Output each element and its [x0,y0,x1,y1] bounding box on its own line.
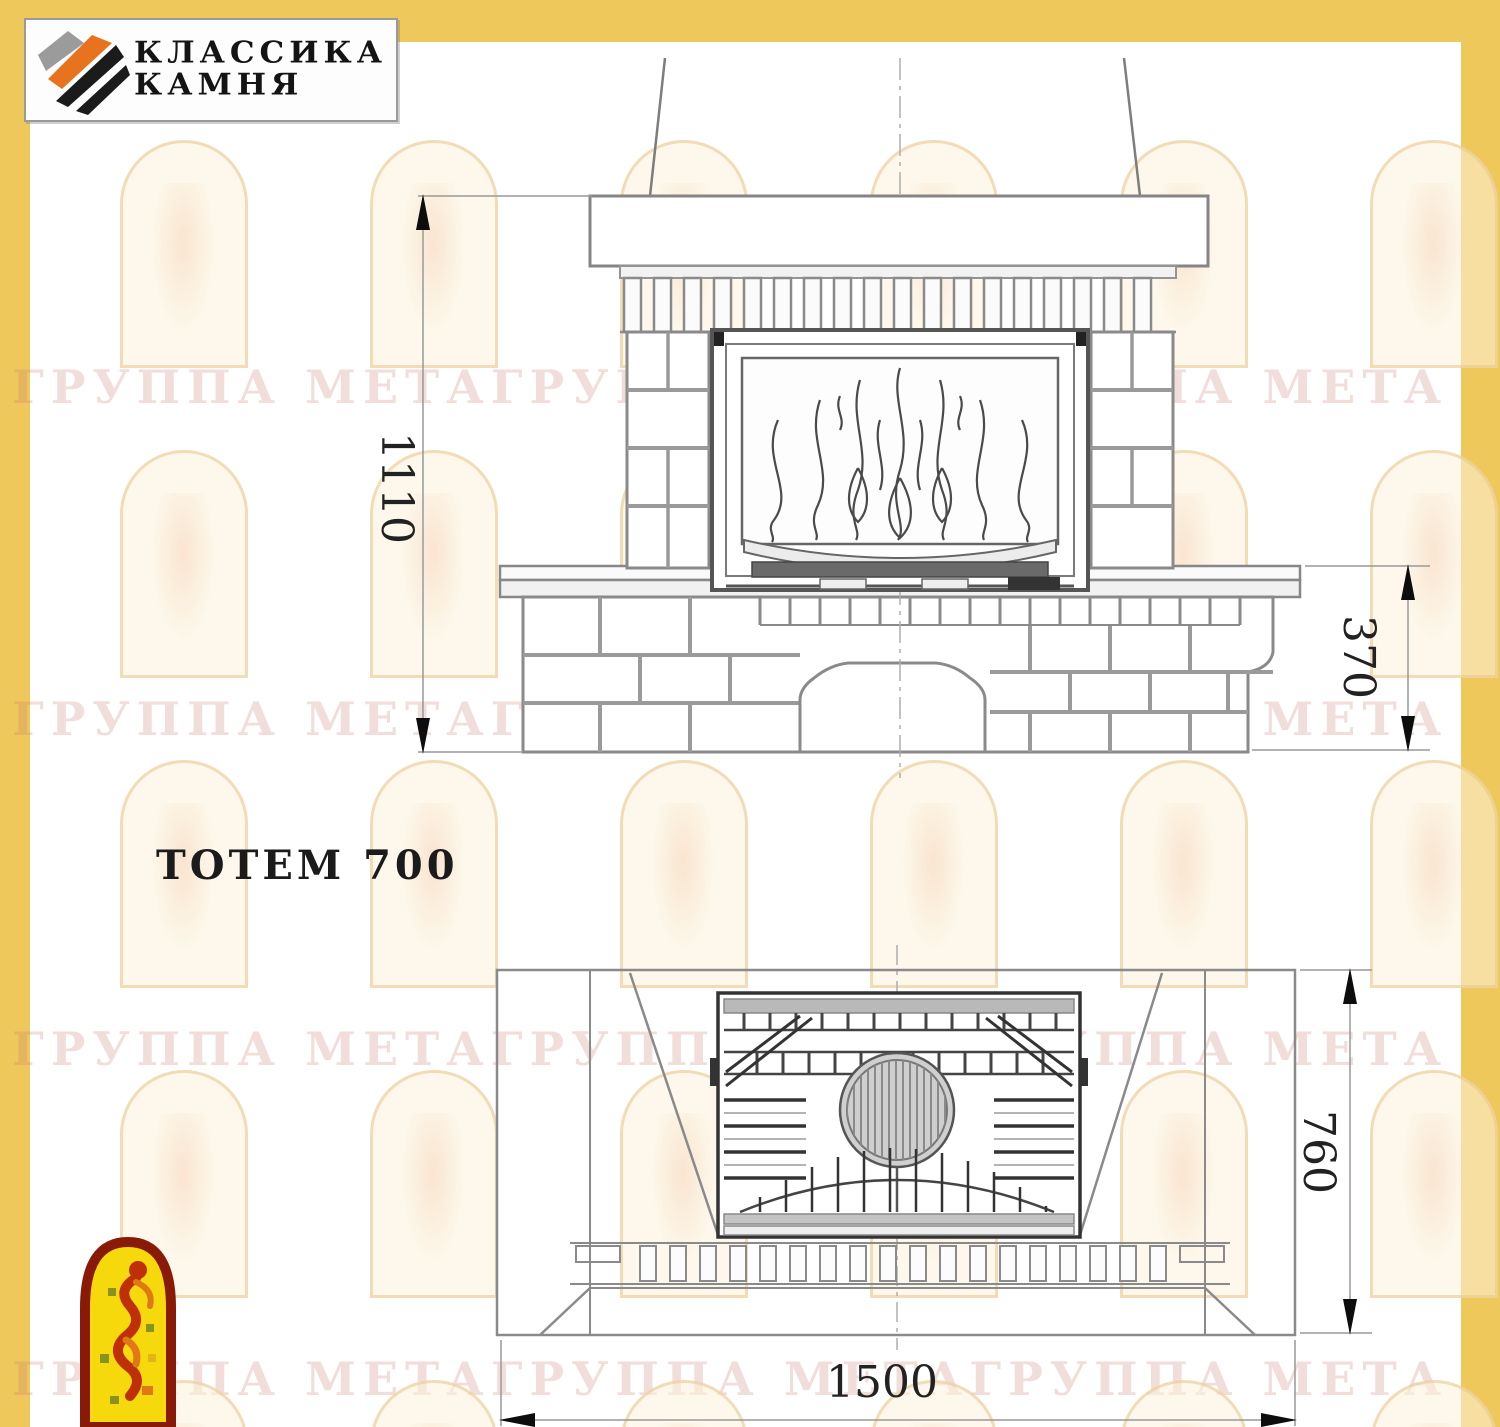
front-elevation-drawing [416,58,1430,778]
dim-label-hearth-height: 370 [1333,572,1383,742]
firebox-insert [712,330,1088,590]
vent-slot-dark [1008,577,1060,590]
logo-stripes-icon [30,25,134,115]
dim-label-plan-depth: 760 [1293,1067,1343,1237]
company-logo: КЛАССИКА КАМНЯ [24,18,398,122]
vent-slot [922,579,968,589]
hinge-left [714,332,724,346]
dentil-band [620,266,1176,332]
vent-slot [820,579,866,589]
logo-line2: КАМНЯ [134,71,396,101]
firebox-front-band [752,562,1048,577]
mantel-shelf [590,196,1208,266]
plan-view-drawing [497,945,1372,1427]
chimney-lines [650,58,1140,196]
hinge-right [1076,332,1086,346]
stone-base [523,597,1273,752]
dim-label-plan-width: 1500 [797,1358,967,1408]
model-title: ТОТЕМ 700 [156,842,459,889]
dim-label-front-height: 1110 [371,403,421,573]
base-arch-opening [800,663,985,752]
fire-mascot [80,1236,176,1427]
plan-firebox [710,993,1088,1237]
fireplace-technical-drawing [0,0,1500,1427]
catalog-page: ГРУППА МЕТАГРУППА МЕТАГРУППА МЕТА ГРУППА… [0,0,1500,1427]
logo-line1: КЛАССИКА [134,39,396,69]
plan-front-slats [570,1243,1230,1284]
